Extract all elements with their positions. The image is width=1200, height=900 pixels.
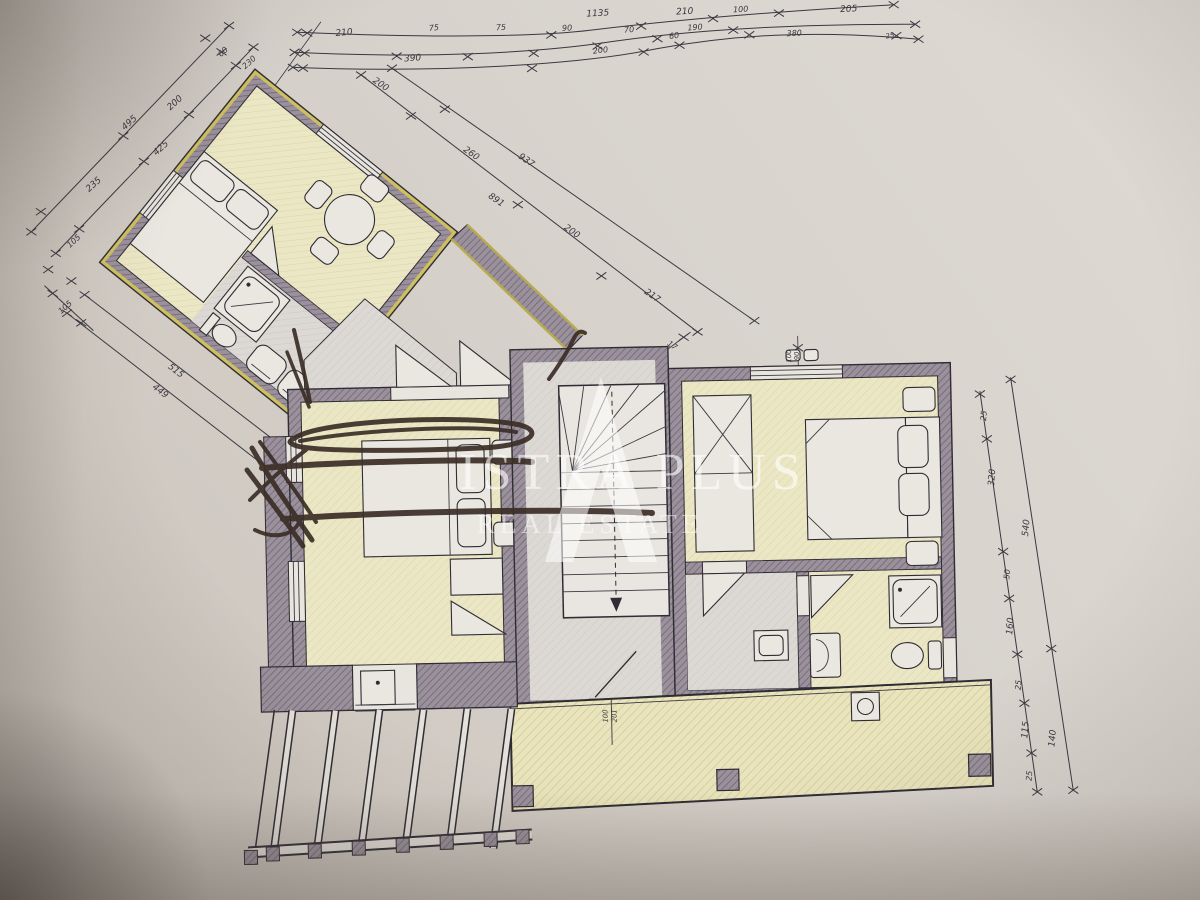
sink-icon — [810, 633, 841, 678]
bath-window — [943, 638, 957, 678]
dim-label: 235 — [84, 175, 104, 194]
dresser-icon — [450, 558, 503, 595]
dim-label: 70 — [624, 25, 635, 35]
shower-icon — [889, 575, 942, 628]
nightstand-icon — [906, 541, 938, 566]
dim-label: 1135 — [586, 8, 610, 19]
dim-label: 25 — [979, 410, 989, 421]
dim-label: 75 — [428, 23, 439, 33]
left-window-2 — [288, 561, 305, 621]
terrace-post — [512, 785, 533, 806]
dim-label: 200 — [562, 223, 582, 241]
dim-label: 60 — [668, 31, 679, 41]
dim-label: 60 — [216, 45, 230, 59]
dim-label: 495 — [120, 114, 140, 133]
washer-icon — [754, 630, 789, 661]
dim-label: 115 — [1020, 721, 1031, 739]
dim-label: 230 — [240, 54, 257, 71]
watermark-tagline: REAL ESTATE — [477, 509, 704, 539]
dim-label: 190 — [687, 22, 703, 32]
terrace — [510, 680, 993, 811]
bath-door-opening — [797, 576, 810, 616]
dim-label: 200 — [592, 45, 608, 56]
dim-label: 90 — [562, 23, 573, 33]
door-size-label: 100 — [601, 709, 609, 722]
window-size-label: 100 — [785, 349, 793, 362]
terrace-post — [717, 769, 739, 790]
dim-label: 160 — [1005, 617, 1016, 635]
bedroom-window — [750, 365, 842, 380]
terrace-post — [968, 754, 990, 776]
dim-label: 200 — [371, 76, 391, 94]
plan: 1135 210 100 205 210 75 75 90 70 190 390… — [22, 0, 1080, 869]
toilet-icon — [891, 641, 942, 670]
nightstand-icon — [903, 387, 935, 412]
top-dimension-chains — [244, 1, 925, 126]
floor-plan-drawing: 1135 210 100 205 210 75 75 90 70 190 390… — [0, 0, 1200, 900]
deck-wall — [260, 665, 353, 712]
dim-label: 515 — [166, 362, 186, 381]
dim-label: 205 — [840, 4, 858, 15]
dim-label: 210 — [676, 7, 694, 18]
dim-label: 449 — [150, 382, 170, 401]
terrace-column-base — [851, 692, 880, 721]
right-block — [668, 347, 957, 704]
deck-wall — [416, 662, 517, 709]
dim-label: 540 — [1021, 519, 1032, 537]
dim-label: 105 — [65, 233, 82, 250]
dim-label: 200 — [166, 94, 186, 113]
dim-label: 100 — [733, 5, 749, 15]
dim-label: 891 — [486, 191, 506, 209]
dim-label: 25 — [1014, 680, 1024, 691]
deck-beams — [241, 705, 532, 865]
dim-label: 25 — [1025, 770, 1035, 781]
door-swing-icon — [460, 340, 517, 386]
dim-label: 50 — [1002, 569, 1012, 580]
photographed-floor-plan: 1135 210 100 205 210 75 75 90 70 190 390… — [0, 0, 1200, 900]
dim-label: 105 — [57, 299, 74, 316]
dim-label: 380 — [786, 28, 802, 38]
door-sill — [361, 670, 396, 705]
radiator-icon — [804, 349, 818, 360]
dim-label: 140 — [1047, 729, 1058, 747]
dim-label: 320 — [987, 468, 998, 486]
external-deck — [240, 662, 532, 865]
dim-label: 25 — [885, 31, 895, 41]
dim-label: 425 — [152, 139, 172, 158]
watermark-brand: ISTRA PLUS — [459, 444, 807, 501]
dim-label: 75 — [496, 23, 507, 33]
dim-label: 260 — [461, 145, 481, 163]
bedroom-door-opening — [702, 561, 746, 574]
window-size-label: 90 — [793, 351, 801, 360]
dim-label: 210 — [335, 27, 353, 39]
dim-label: 390 — [404, 53, 422, 64]
